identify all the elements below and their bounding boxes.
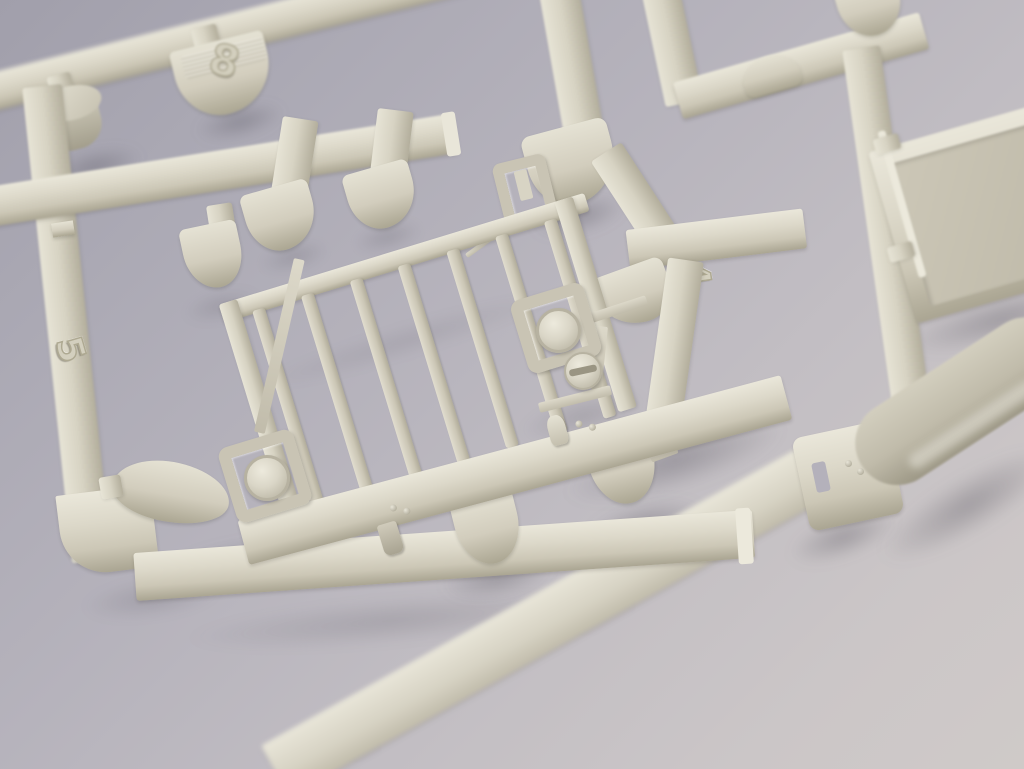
gate-stub: [98, 474, 123, 499]
headlight-dome-right: [536, 308, 581, 353]
rivet-dot: [857, 468, 864, 475]
headlight-dome-left: [244, 455, 290, 501]
sprue-photo: 8 5 4: [0, 0, 1024, 769]
rivet-dot: [845, 460, 852, 467]
